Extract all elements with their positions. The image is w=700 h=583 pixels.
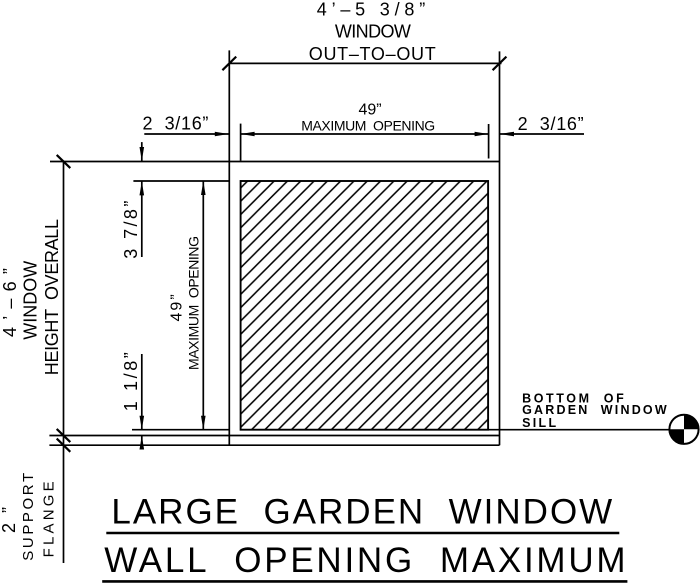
svg-text:3 7/8”: 3 7/8” [121,198,141,258]
svg-text:WINDOW: WINDOW [21,261,41,340]
svg-text:LARGE GARDEN WINDOW: LARGE GARDEN WINDOW [111,492,614,531]
svg-text:GARDEN WINDOW: GARDEN WINDOW [522,403,669,417]
svg-text:49”: 49” [358,101,381,118]
svg-text:MAXIMUM OPENING: MAXIMUM OPENING [301,117,435,133]
svg-text:4’–5 3/8”: 4’–5 3/8” [317,0,430,19]
svg-text:2 3/16”: 2 3/16” [518,114,585,134]
svg-text:MAXIMUM OPENING: MAXIMUM OPENING [186,236,202,370]
svg-text:49”: 49” [169,292,186,321]
svg-text:SILL: SILL [522,416,558,430]
svg-text:1 1/8”: 1 1/8” [121,350,141,412]
svg-text:WINDOW: WINDOW [335,22,411,42]
svg-text:2 3/16”: 2 3/16” [142,113,209,133]
svg-text:2”: 2” [0,497,19,533]
svg-text:4’–6”: 4’–6” [0,261,20,337]
svg-text:SUPPORT: SUPPORT [20,470,37,560]
svg-text:FLANGE: FLANGE [40,478,57,557]
svg-text:WALL OPENING MAXIMUM: WALL OPENING MAXIMUM [104,541,628,580]
svg-text:HEIGHT OVERALL: HEIGHT OVERALL [42,219,62,375]
svg-text:OUT–TO–OUT: OUT–TO–OUT [309,44,437,64]
